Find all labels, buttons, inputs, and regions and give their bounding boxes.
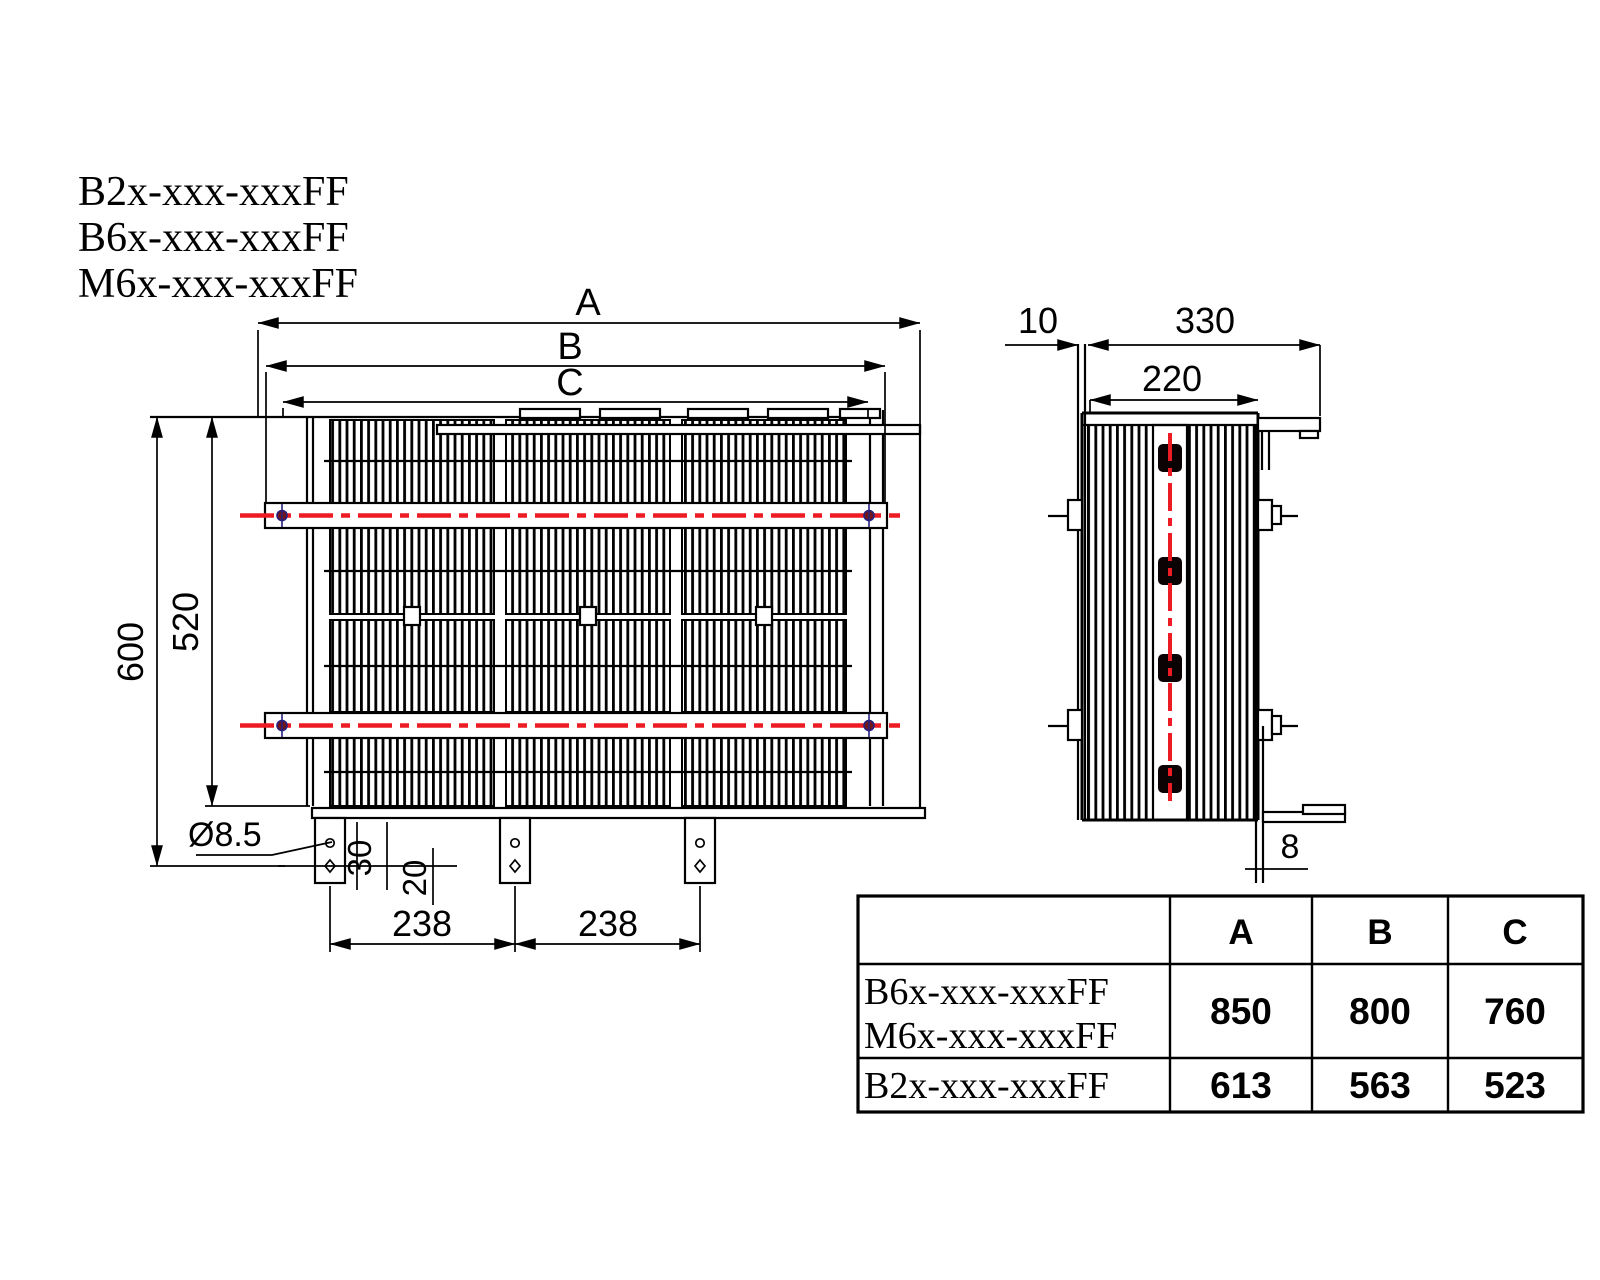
table-header-b: B bbox=[1367, 913, 1392, 952]
spec-table: A B C B6x-xxx-xxxFF M6x-xxx-xxxFF 850 80… bbox=[858, 896, 1583, 1112]
table-header-a: A bbox=[1228, 913, 1253, 952]
row1-value-b: 800 bbox=[1349, 991, 1411, 1032]
row1-value-c: 760 bbox=[1484, 991, 1546, 1032]
model-name-1: B2x-xxx-xxxFF bbox=[78, 169, 349, 215]
row2-value-a: 613 bbox=[1210, 1065, 1272, 1106]
model-name-list: B2x-xxx-xxxFF B6x-xxx-xxxFF M6x-xxx-xxxF… bbox=[78, 169, 358, 307]
dim-330-label: 330 bbox=[1175, 300, 1235, 341]
reactor-dimension-drawing: B2x-xxx-xxxFF B6x-xxx-xxxFF M6x-xxx-xxxF… bbox=[0, 0, 1600, 1280]
dim-20-label: 20 bbox=[396, 860, 433, 897]
dim-30-label: 30 bbox=[341, 840, 378, 877]
side-brackets bbox=[1256, 418, 1345, 883]
dim-8-label: 8 bbox=[1281, 828, 1300, 866]
model-name-3: M6x-xxx-xxxFF bbox=[78, 261, 358, 307]
top-plate bbox=[437, 425, 920, 434]
row2-value-b: 563 bbox=[1349, 1065, 1411, 1106]
row1-label-line2: M6x-xxx-xxxFF bbox=[864, 1015, 1117, 1057]
dimension-heights: 600 520 bbox=[110, 417, 310, 866]
dim-c-label: C bbox=[556, 362, 583, 404]
model-name-2: B6x-xxx-xxxFF bbox=[78, 215, 349, 261]
side-view: 10 330 220 8 bbox=[1005, 300, 1345, 883]
dim-10-label: 10 bbox=[1018, 300, 1058, 341]
front-view: A B C 600 520 Ø8.5 bbox=[110, 282, 925, 952]
cad-drawing-page: B2x-xxx-xxxFF B6x-xxx-xxxFF M6x-xxx-xxxF… bbox=[0, 0, 1600, 1280]
row1-label-line1: B6x-xxx-xxxFF bbox=[864, 971, 1109, 1013]
dim-220-label: 220 bbox=[1142, 358, 1202, 399]
table-header-c: C bbox=[1502, 913, 1527, 952]
dim-238-right-label: 238 bbox=[578, 903, 638, 944]
row2-value-c: 523 bbox=[1484, 1065, 1546, 1106]
row2-label: B2x-xxx-xxxFF bbox=[864, 1065, 1109, 1107]
dim-520-label: 520 bbox=[165, 592, 206, 652]
dim-hole-diameter-label: Ø8.5 bbox=[188, 816, 262, 854]
row1-value-a: 850 bbox=[1210, 991, 1272, 1032]
bottom-plate bbox=[312, 808, 925, 818]
dim-a-label: A bbox=[575, 282, 601, 324]
dim-238-left-label: 238 bbox=[392, 903, 452, 944]
dimension-foot-spans: 238 238 bbox=[330, 886, 700, 952]
coil-windings bbox=[324, 420, 852, 806]
dim-600-label: 600 bbox=[110, 622, 151, 682]
